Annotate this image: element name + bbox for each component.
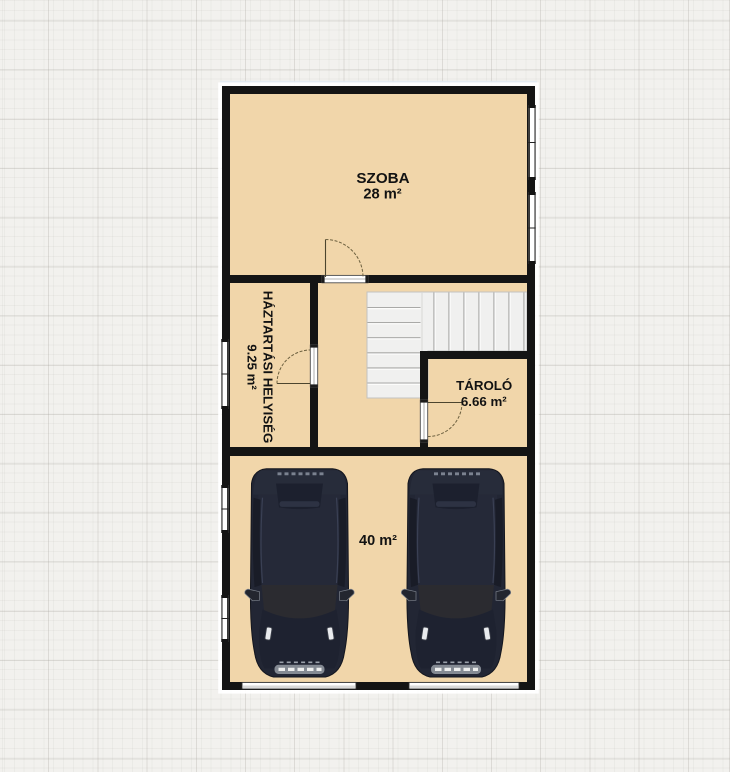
svg-text:TÁROLÓ: TÁROLÓ xyxy=(456,378,512,393)
svg-text:9.25 m²: 9.25 m² xyxy=(245,344,260,390)
svg-text:28 m²: 28 m² xyxy=(363,187,401,203)
svg-text:SZOBA: SZOBA xyxy=(356,170,409,187)
svg-text:6.66 m²: 6.66 m² xyxy=(461,394,507,409)
svg-text:40 m²: 40 m² xyxy=(359,533,397,549)
svg-text:HÁZTARTÁSI HELYISÉG: HÁZTARTÁSI HELYISÉG xyxy=(261,291,276,443)
